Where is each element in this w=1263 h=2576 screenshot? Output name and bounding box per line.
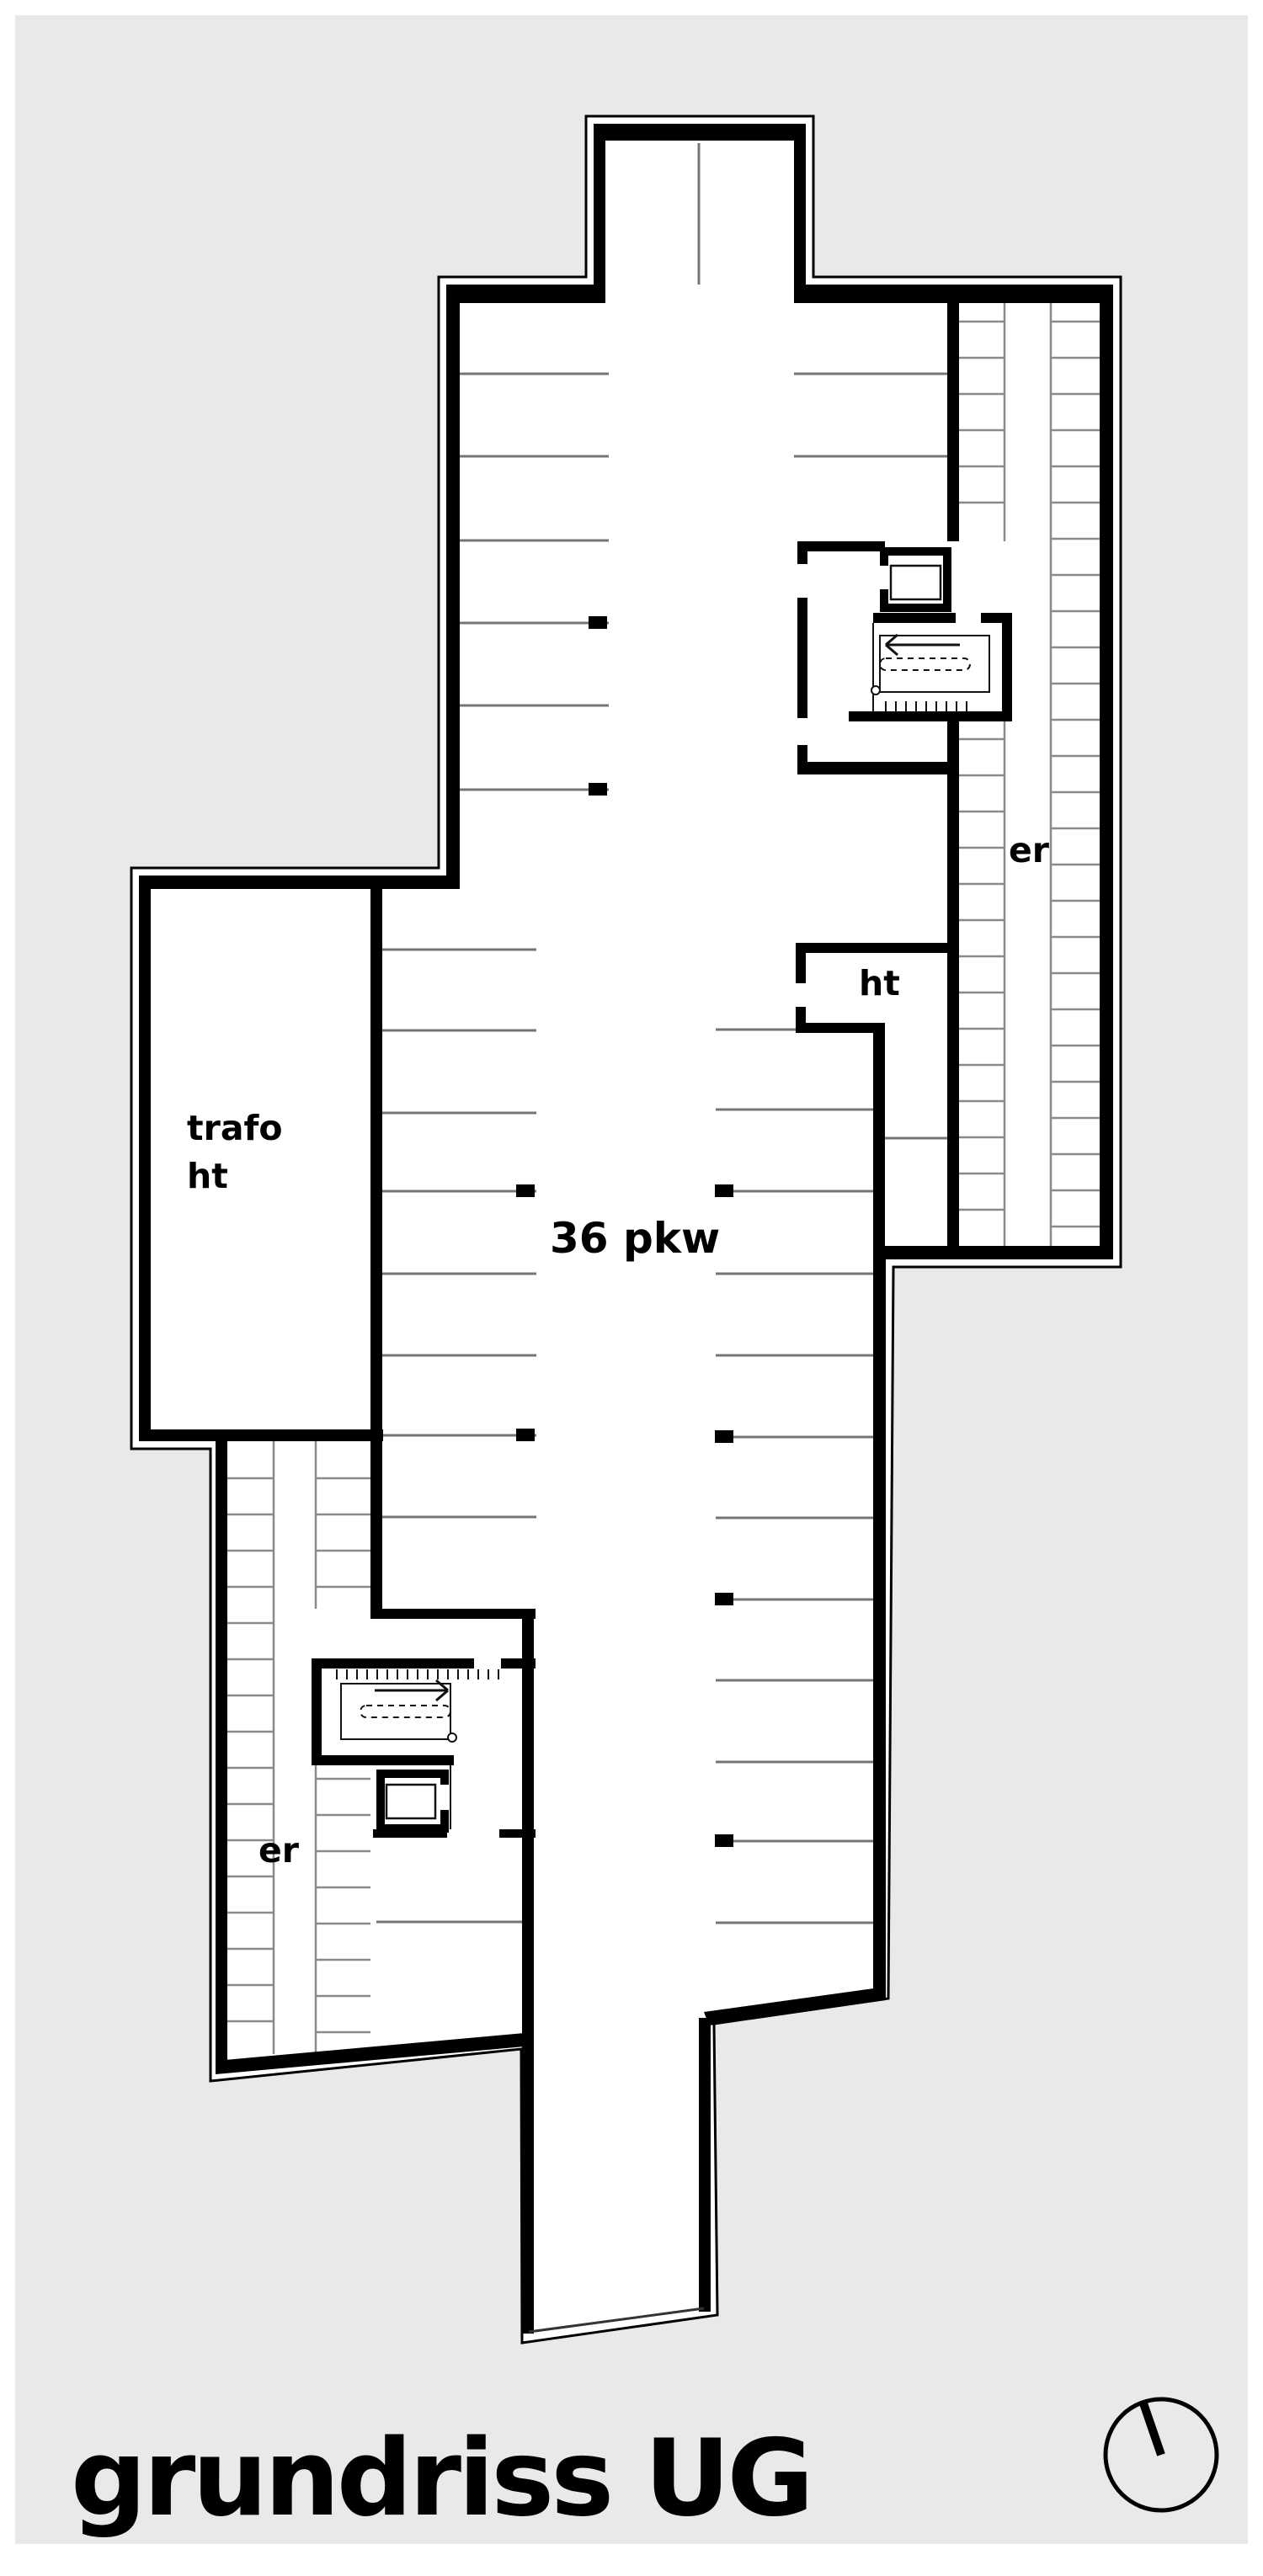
trafo-room-label-line1: trafo	[187, 1104, 283, 1152]
storage-room-label-right: er	[1005, 830, 1052, 870]
ramp-top-wall	[594, 124, 806, 141]
floor-plan-sheet: trafo ht ht er er 36 pkw grundriss UG	[0, 0, 1263, 2576]
trafo-room-label: trafo ht	[187, 1104, 283, 1200]
trafo-top-wall	[139, 876, 460, 889]
exit-ramp-left-wall	[522, 1609, 534, 2334]
floor-plan-drawing	[0, 0, 1263, 2576]
storage-room-label-left: er	[255, 1830, 302, 1871]
page-title: grundriss UG	[71, 2416, 811, 2540]
trafo-room-label-line2: ht	[187, 1152, 283, 1200]
parking-count-label: 36 pkw	[550, 1214, 720, 1263]
ht-room-label: ht	[859, 963, 900, 1003]
exit-ramp-right-wall	[699, 2018, 711, 2312]
